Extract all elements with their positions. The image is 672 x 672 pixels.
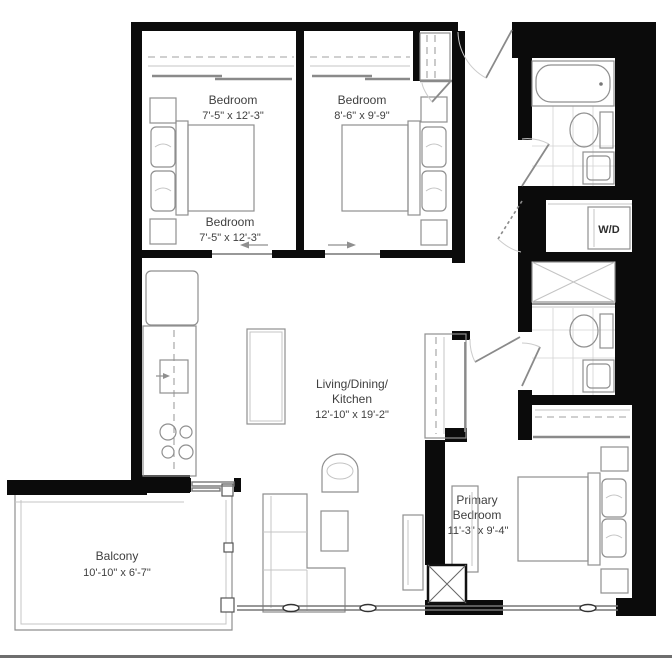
- wall-segment: [184, 478, 191, 492]
- bathroom-door-arc: [522, 343, 540, 347]
- toilet-bowl: [570, 315, 598, 347]
- sink-basin: [587, 156, 610, 180]
- room-label: Living/Dining/: [316, 377, 389, 391]
- pillow: [602, 479, 626, 517]
- primary-bedroom: Primary Bedroom 11'-3" x 9'-4": [428, 447, 628, 603]
- room-label: Bedroom: [206, 215, 255, 229]
- wall-segment: [518, 200, 546, 252]
- room-label: Primary: [456, 493, 497, 507]
- wall-segment: [413, 31, 420, 81]
- living-room: Living/Dining/ Kitchen 12'-10" x 19'-2": [263, 377, 423, 612]
- wall-segment: [272, 250, 325, 258]
- mattress: [188, 125, 254, 211]
- entry-door-leaf: [486, 30, 512, 78]
- wall-segment: [518, 390, 532, 440]
- wall-segment: [452, 31, 465, 263]
- floor-plan: Bedroom 7'-5" x 12'-3" Bedroom 7'-5" x 1…: [0, 0, 672, 672]
- burner: [180, 426, 192, 438]
- room-dims: 12'-10" x 19'-2": [315, 409, 389, 421]
- pillow: [602, 519, 626, 557]
- sink-vanity: [583, 152, 614, 184]
- pillow-crease: [155, 188, 171, 191]
- arrow-head: [347, 242, 356, 249]
- mullion: [580, 605, 596, 612]
- headboard: [408, 121, 420, 215]
- island-counter: [247, 329, 285, 424]
- nightstand: [150, 219, 176, 244]
- island: [247, 329, 285, 424]
- room-dims: 7'-5" x 12'-3": [199, 232, 261, 244]
- balcony: Balcony 10'-10" x 6'-7": [15, 482, 234, 630]
- wall-segment: [615, 252, 632, 405]
- nightstand: [601, 447, 628, 471]
- wall-segment: [616, 598, 656, 616]
- kitchen-sink: [156, 360, 188, 393]
- wall-segment: [131, 22, 458, 31]
- bedroom-1: Bedroom 7'-5" x 12'-3" Bedroom 7'-5" x 1…: [148, 57, 294, 254]
- tv-console-outline: [403, 515, 423, 590]
- door-arc: [470, 339, 475, 362]
- wall-segment: [518, 58, 532, 140]
- wall-segment: [142, 250, 212, 258]
- room-dims: 10'-10" x 6'-7": [83, 567, 151, 579]
- wall-segment: [518, 262, 532, 332]
- door-leaf: [475, 337, 520, 362]
- bathroom-2: [522, 262, 615, 395]
- sliding-door-arrow: [328, 242, 356, 249]
- shower-x: [532, 262, 615, 302]
- wall-segment: [131, 22, 142, 492]
- door-panel: [192, 488, 220, 491]
- wall-segment: [234, 478, 241, 492]
- pillow: [422, 171, 446, 211]
- room-label: Bedroom: [453, 508, 502, 522]
- bifold-door-arc: [498, 239, 521, 252]
- pillow-crease: [426, 144, 442, 147]
- vanity-counter: [583, 360, 614, 392]
- walls: [7, 22, 656, 616]
- bedroom-2: Bedroom 8'-6" x 9'-9": [310, 33, 452, 254]
- railing-post: [224, 543, 233, 552]
- bathroom-door-leaf: [522, 144, 549, 186]
- nightstand: [601, 569, 628, 593]
- tub-drain: [599, 82, 603, 86]
- floor-plan-drawing: Bedroom 7'-5" x 12'-3" Bedroom 7'-5" x 1…: [0, 0, 672, 672]
- hall-closet: [425, 334, 466, 438]
- wall-segment: [425, 440, 445, 565]
- bed: [518, 447, 628, 593]
- mullion: [283, 605, 299, 612]
- entry-closet: [420, 33, 452, 102]
- wall-segment: [512, 22, 632, 58]
- closet-outline: [425, 334, 466, 438]
- tv-console: [403, 515, 423, 590]
- wall-segment: [296, 31, 304, 258]
- kitchen: [143, 271, 285, 476]
- wall-segment: [380, 250, 464, 258]
- burner: [179, 445, 193, 459]
- wall-segment: [7, 480, 147, 495]
- wall-segment: [518, 186, 632, 200]
- mattress: [342, 125, 408, 211]
- closet-door-arc: [422, 83, 432, 102]
- room-label: Bedroom: [338, 93, 387, 107]
- wall-segment: [518, 252, 632, 262]
- armchair: [322, 454, 358, 492]
- toilet-tank: [600, 314, 613, 348]
- room-label: Balcony: [96, 549, 139, 563]
- sink-vanity: [583, 360, 614, 392]
- pillow-crease: [606, 495, 622, 498]
- pillow-crease: [426, 188, 442, 191]
- pillow: [151, 127, 175, 167]
- primary-closet: [533, 410, 630, 437]
- mattress: [518, 477, 588, 561]
- shower: [532, 262, 615, 307]
- toilet-tank: [600, 112, 613, 148]
- laundry-label: W/D: [598, 224, 619, 236]
- cooktop: [160, 424, 193, 459]
- room-label: Kitchen: [332, 392, 372, 406]
- island-inner: [250, 332, 282, 421]
- sofa-outline: [263, 494, 345, 612]
- wall-segment: [632, 22, 656, 612]
- pillow: [151, 171, 175, 211]
- bathroom-door-leaf: [522, 347, 540, 386]
- toilet: [570, 314, 613, 348]
- wall-segment: [445, 428, 467, 442]
- toilet-bowl: [570, 113, 598, 147]
- refrigerator: [146, 271, 198, 325]
- room-label: Bedroom: [209, 93, 258, 107]
- nightstand: [150, 98, 176, 123]
- armchair-cushion: [327, 463, 353, 479]
- wall-segment: [131, 475, 190, 493]
- sink-basin: [587, 364, 610, 388]
- counter: [143, 326, 196, 476]
- coffee-table: [321, 511, 348, 551]
- page-divider-line: [0, 655, 672, 658]
- wall-segment: [452, 331, 470, 340]
- bathroom-1: [522, 61, 615, 186]
- nightstand: [421, 220, 447, 245]
- pillow-crease: [606, 535, 622, 538]
- toilet: [570, 112, 613, 148]
- vanity-counter: [583, 152, 614, 184]
- pillow: [422, 127, 446, 167]
- mullion: [360, 605, 376, 612]
- headboard: [176, 121, 188, 215]
- faucet-head: [163, 373, 170, 379]
- wall-segment: [615, 22, 632, 186]
- pillow-crease: [155, 144, 171, 147]
- headboard: [588, 473, 600, 565]
- entry: [458, 30, 512, 78]
- room-dims: 7'-5" x 12'-3": [202, 110, 264, 122]
- shaft-column: [428, 565, 466, 603]
- bathtub: [532, 61, 614, 106]
- primary-door: [470, 337, 520, 362]
- wall-segment: [532, 395, 632, 405]
- railing-post: [221, 598, 234, 612]
- sofa: [263, 494, 345, 612]
- tub-basin: [536, 65, 610, 102]
- burner: [162, 446, 174, 458]
- room-dims: 8'-6" x 9'-9": [334, 110, 390, 122]
